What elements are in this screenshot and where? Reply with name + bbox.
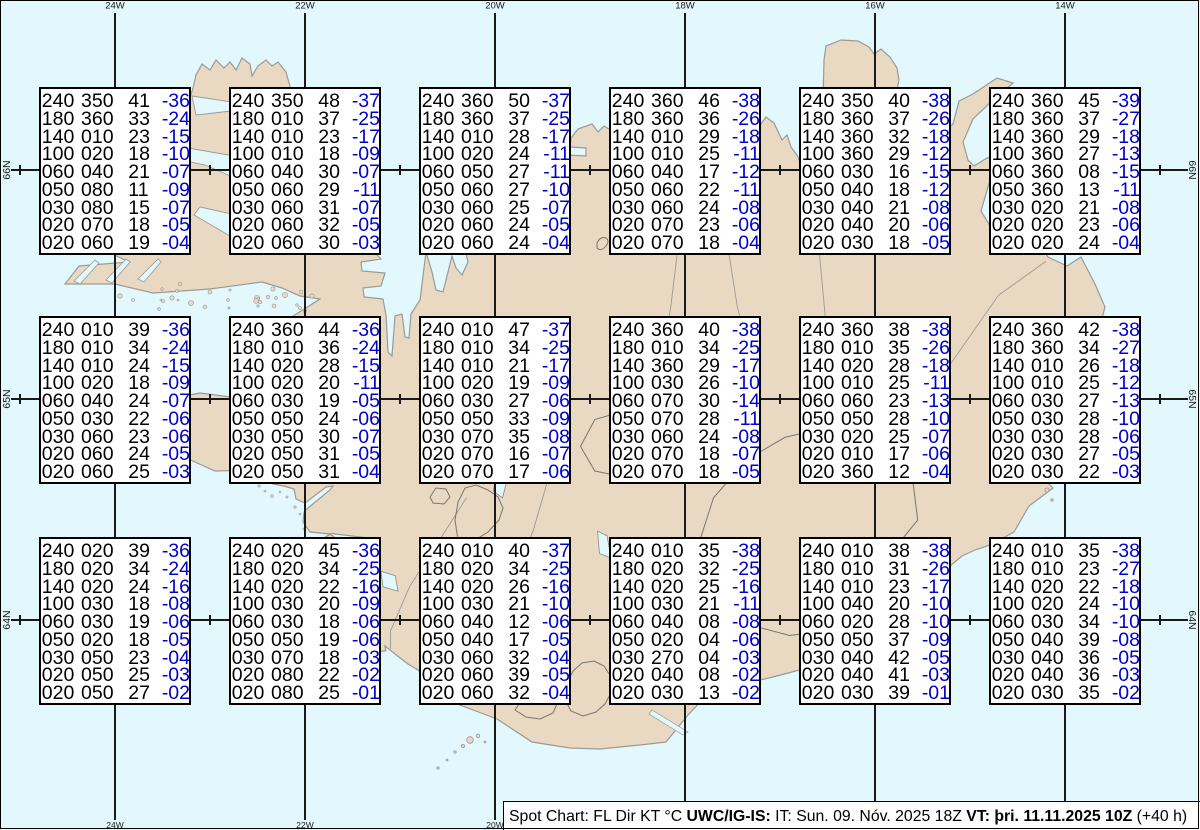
svg-text:24W: 24W xyxy=(105,1,125,12)
svg-text:65N: 65N xyxy=(1186,389,1198,408)
svg-text:18W: 18W xyxy=(675,1,695,12)
svg-text:66N: 66N xyxy=(1,160,13,179)
svg-text:64N: 64N xyxy=(1186,610,1198,629)
svg-text:14W: 14W xyxy=(1055,1,1075,12)
svg-text:65N: 65N xyxy=(1,389,13,408)
svg-text:22W: 22W xyxy=(296,820,313,830)
svg-text:16W: 16W xyxy=(865,1,885,12)
svg-text:66N: 66N xyxy=(1186,160,1198,179)
svg-text:20W: 20W xyxy=(485,1,505,12)
svg-text:20W: 20W xyxy=(486,820,503,830)
svg-text:64N: 64N xyxy=(1,610,13,629)
svg-text:24W: 24W xyxy=(106,820,123,830)
svg-text:22W: 22W xyxy=(295,1,315,12)
